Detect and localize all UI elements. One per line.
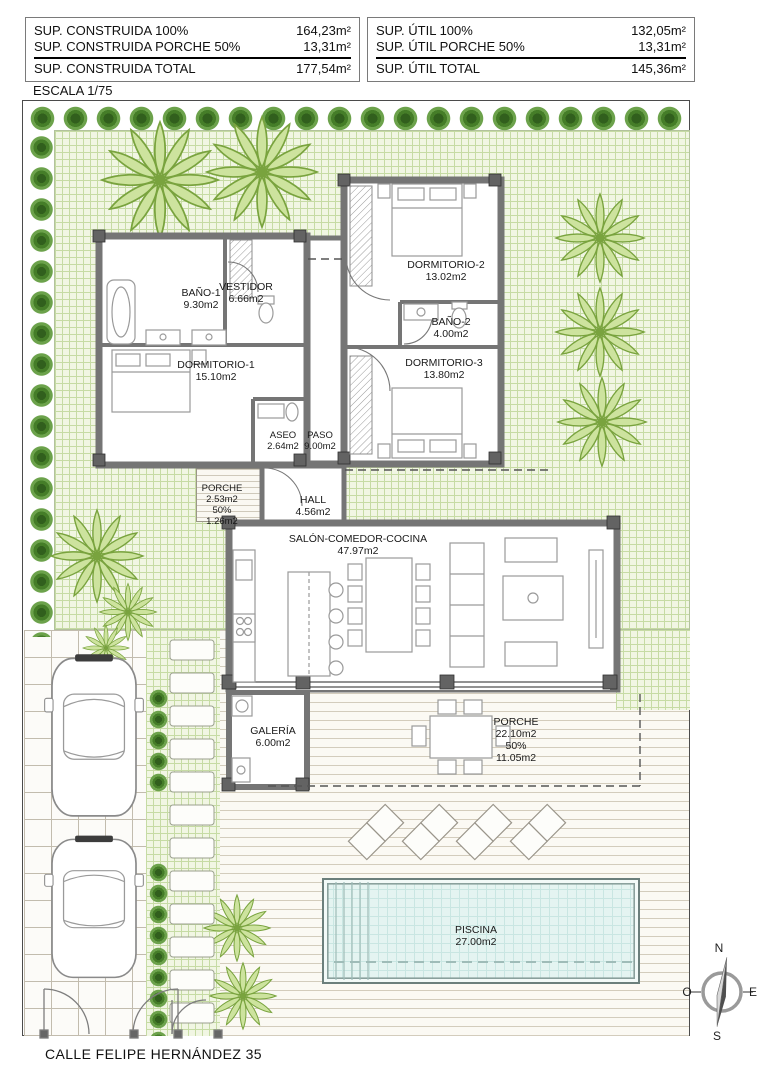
car-1 — [45, 654, 144, 816]
room-label-piscina: PISCINA27.00m2 — [455, 924, 497, 948]
room-label-vestidor: VESTIDOR6.66m2 — [219, 281, 273, 305]
room-label-dormitorio2: DORMITORIO-213.02m2 — [407, 259, 484, 283]
room-label-paso: PASO9.00m2 — [304, 430, 336, 452]
bathtub — [107, 280, 135, 344]
stepping-stones — [170, 640, 214, 1023]
room-label-bano1: BAÑO-19.30m2 — [181, 287, 220, 311]
room-label-dormitorio3: DORMITORIO-313.80m2 — [405, 357, 482, 381]
sofa — [450, 543, 484, 667]
bed-dormitorio3 — [378, 388, 476, 458]
street-label: CALLE FELIPE HERNÁNDEZ 35 — [45, 1046, 262, 1062]
room-label-galeria: GALERÍA6.00m2 — [250, 725, 296, 749]
room-label-porche: PORCHE22.10m2 50%11.05m2 — [494, 716, 539, 764]
sun-loungers — [348, 804, 565, 859]
room-label-dormitorio1: DORMITORIO-115.10m2 — [177, 359, 254, 383]
coffee-table — [503, 576, 563, 620]
compass-west-label: O — [682, 985, 691, 999]
compass-rose — [691, 957, 753, 1028]
compass-south-label: S — [713, 1029, 721, 1043]
room-label-porche-entrada: PORCHE2.53m2 50%1.26m2 — [202, 483, 243, 527]
aseo-fixtures — [258, 403, 298, 421]
compass-east-label: E — [749, 985, 757, 999]
room-label-aseo: ASEO2.64m2 — [267, 430, 299, 452]
floorplan-page: SUP. CONSTRUIDA 100% 164,23m² SUP. CONST… — [0, 0, 763, 1080]
room-label-salon: SALÓN-COMEDOR-COCINA47.97m2 — [289, 533, 427, 557]
bed-dormitorio2 — [378, 184, 476, 256]
compass-north-label: N — [715, 941, 724, 955]
room-label-bano2: BAÑO-24.00m2 — [431, 316, 470, 340]
tv-console — [589, 550, 603, 648]
house-walls — [93, 174, 640, 791]
kitchen-counter — [233, 550, 255, 682]
room-label-hall: HALL4.56m2 — [295, 494, 330, 518]
car-2 — [45, 836, 144, 978]
